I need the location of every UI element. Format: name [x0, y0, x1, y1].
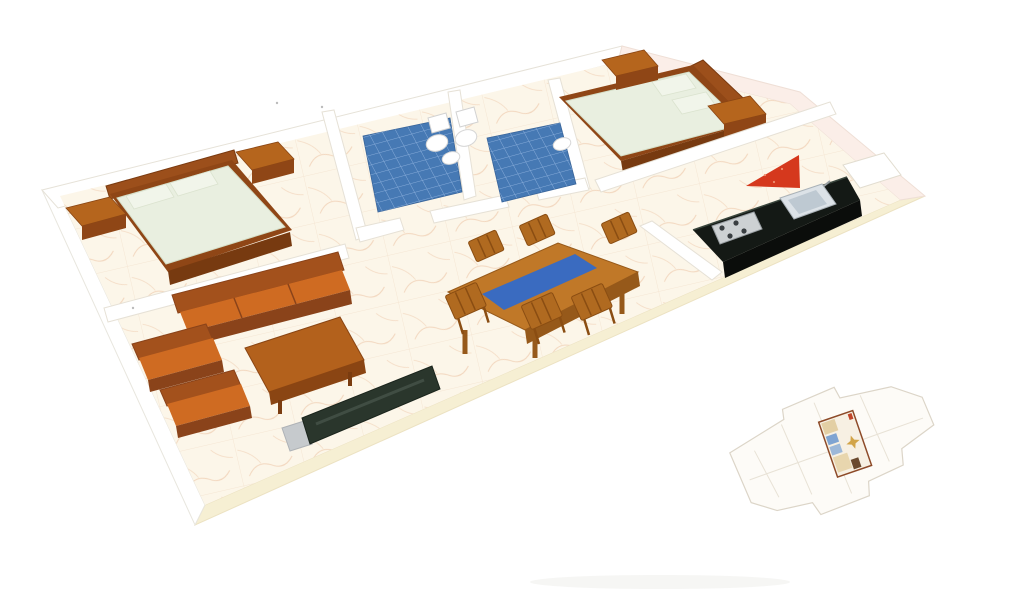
- red-granite-speckle: [781, 168, 783, 170]
- stove-burner: [727, 233, 732, 238]
- scan-speck-3: [132, 307, 134, 309]
- stove-burner: [733, 220, 738, 225]
- stove-burner: [719, 225, 724, 230]
- scan-speck-1: [276, 102, 278, 104]
- red-granite-speckle: [764, 174, 766, 176]
- inset-key-plan: [721, 361, 950, 536]
- stove-burner: [741, 228, 746, 233]
- red-granite-speckle: [773, 181, 775, 183]
- apartment-render: [0, 0, 1024, 597]
- apartment-render-page: [0, 0, 1024, 597]
- scan-smudge: [530, 575, 790, 589]
- scan-speck-2: [321, 106, 323, 108]
